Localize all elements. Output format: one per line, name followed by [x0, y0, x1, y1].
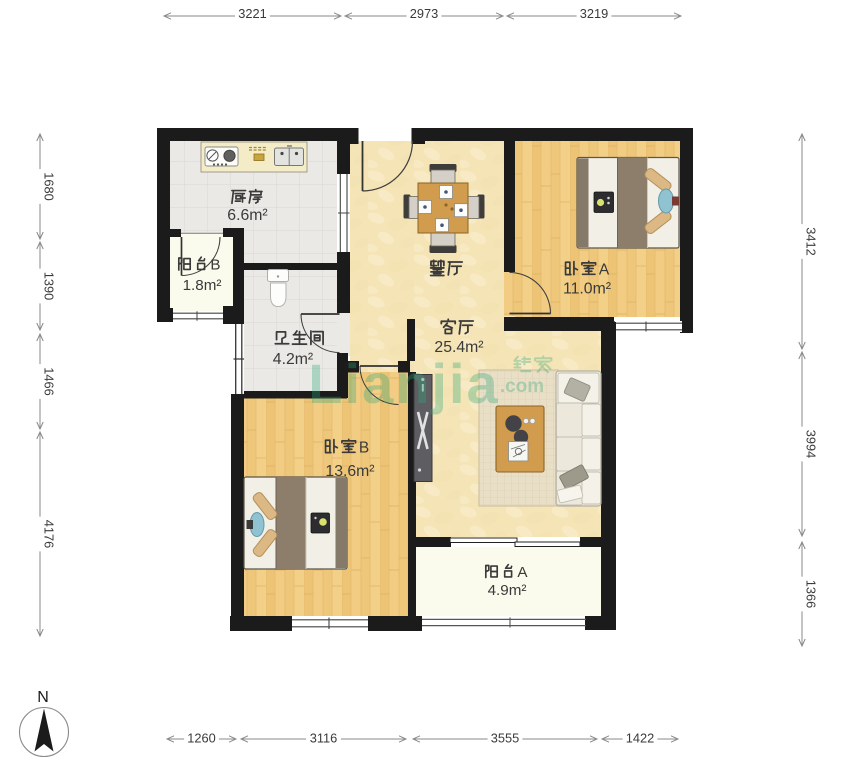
svg-text:A: A — [599, 262, 610, 279]
svg-text:3994: 3994 — [803, 430, 818, 458]
svg-text:1680: 1680 — [41, 172, 56, 200]
svg-text:6.6m²: 6.6m² — [227, 207, 267, 224]
svg-text:4.2m²: 4.2m² — [273, 351, 313, 368]
svg-text:1466: 1466 — [41, 367, 56, 395]
svg-text:N: N — [37, 689, 49, 706]
svg-text:1260: 1260 — [187, 731, 215, 746]
svg-text:Lianjia: Lianjia — [308, 352, 499, 415]
svg-text:11.0m²: 11.0m² — [563, 281, 611, 298]
svg-text:3221: 3221 — [238, 6, 266, 21]
svg-text:3412: 3412 — [803, 227, 818, 255]
svg-text:B: B — [210, 257, 220, 274]
svg-text:13.6m²: 13.6m² — [325, 463, 374, 480]
svg-text:3116: 3116 — [310, 731, 338, 746]
svg-text:B: B — [359, 440, 369, 457]
svg-text:1422: 1422 — [626, 731, 654, 746]
svg-text:4176: 4176 — [41, 520, 56, 548]
svg-text:3555: 3555 — [491, 731, 519, 746]
svg-text:1366: 1366 — [803, 580, 818, 608]
svg-text:3219: 3219 — [580, 6, 608, 21]
svg-text:2973: 2973 — [410, 6, 438, 21]
svg-text:.com: .com — [500, 376, 544, 397]
svg-text:1390: 1390 — [41, 272, 56, 300]
svg-text:4.9m²: 4.9m² — [488, 582, 527, 599]
svg-text:1.8m²: 1.8m² — [183, 277, 222, 294]
svg-text:A: A — [517, 564, 528, 581]
